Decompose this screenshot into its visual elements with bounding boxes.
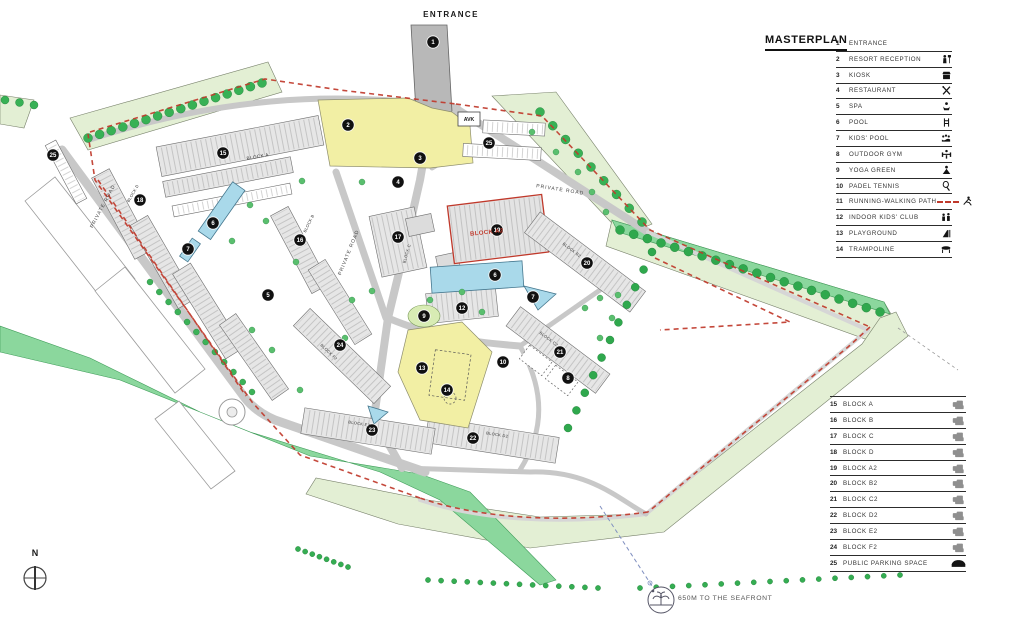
- svg-text:10: 10: [500, 360, 507, 366]
- legend-row-24: 24BLOCK F2: [830, 540, 966, 556]
- tree: [897, 572, 902, 577]
- legend-label: POOL: [849, 119, 941, 126]
- map-marker-1: 1: [427, 36, 439, 48]
- legend-number: 15: [830, 401, 843, 408]
- legend-row-17: 17BLOCK C: [830, 429, 966, 445]
- tree: [16, 99, 24, 107]
- tree: [780, 277, 789, 286]
- tree: [504, 581, 509, 586]
- tree: [816, 576, 821, 581]
- tree: [107, 126, 116, 135]
- legend-label: TRAMPOLINE: [849, 246, 940, 253]
- map-label: AVK: [464, 117, 475, 123]
- legend-row-1: 1ENTRANCE: [836, 36, 952, 52]
- tree: [725, 260, 734, 269]
- legend-label: KIOSK: [849, 72, 941, 79]
- tree: [582, 305, 588, 311]
- legend-number: 13: [836, 230, 849, 237]
- legend-number: 14: [836, 246, 849, 253]
- legend-row-15: 15BLOCK A: [830, 397, 966, 413]
- map-label: BLOCK B: [302, 213, 315, 233]
- tree: [30, 101, 38, 109]
- tree: [569, 584, 574, 589]
- legend-row-12: 12INDOOR KIDS' CLUB: [836, 210, 952, 226]
- tree: [297, 387, 303, 393]
- tree: [295, 546, 300, 551]
- tree: [881, 573, 886, 578]
- map-label: N: [32, 548, 39, 558]
- legend-row-22: 22BLOCK D2: [830, 508, 966, 524]
- legend-label: BLOCK D: [843, 449, 952, 456]
- tree: [530, 582, 535, 587]
- tree: [581, 389, 589, 397]
- legend-row-7: 7KIDS' POOL: [836, 131, 952, 147]
- tree: [246, 82, 255, 91]
- gym-icon: [941, 149, 952, 160]
- building-icon: [952, 463, 966, 474]
- svg-text:25: 25: [486, 141, 493, 147]
- legend-blocks: 15BLOCK A16BLOCK B17BLOCK C18BLOCK D19BL…: [830, 396, 966, 572]
- legend-number: 19: [830, 465, 843, 472]
- tree: [793, 282, 802, 291]
- legend-label: BLOCK B: [843, 417, 952, 424]
- legend-number: 4: [836, 87, 849, 94]
- legend-amenities: 1ENTRANCE2RESORT RECEPTION3KIOSK4RESTAUR…: [836, 36, 952, 258]
- map-marker-20: 20: [581, 257, 593, 269]
- playground-icon: [941, 228, 952, 239]
- tree: [637, 585, 642, 590]
- legend-row-14: 14TRAMPOLINE: [836, 242, 952, 258]
- map-marker-2: 2: [342, 119, 354, 131]
- map-marker-21: 21: [554, 346, 566, 358]
- tree: [767, 579, 772, 584]
- tree: [452, 579, 457, 584]
- legend-row-20: 20BLOCK B2: [830, 476, 966, 492]
- building-icon: [952, 526, 966, 537]
- legend-label: BLOCK F2: [843, 544, 952, 551]
- tree: [317, 554, 322, 559]
- tree: [735, 581, 740, 586]
- legend-row-25: 25PUBLIC PARKING SPACE: [830, 556, 966, 572]
- runner-icon: [962, 196, 973, 207]
- legend-row-5: 5SPA: [836, 99, 952, 115]
- restaurant-icon: [941, 85, 952, 96]
- tree: [615, 292, 621, 298]
- map-marker-4: 4: [392, 176, 404, 188]
- tree: [310, 552, 315, 557]
- tree: [614, 318, 622, 326]
- building: [219, 314, 288, 401]
- tree: [807, 286, 816, 295]
- legend-label: YOGA GREEN: [849, 167, 941, 174]
- seafront-icon: [648, 587, 674, 613]
- svg-text:20: 20: [584, 261, 591, 267]
- map-marker-18: 18: [134, 194, 146, 206]
- building: [463, 143, 542, 160]
- legend-row-2: 2RESORT RECEPTION: [836, 52, 952, 68]
- building-icon: [952, 494, 966, 505]
- tree: [331, 559, 336, 564]
- legend-label: KIDS' POOL: [849, 135, 940, 142]
- tree: [739, 264, 748, 273]
- svg-text:16: 16: [297, 238, 304, 244]
- map-marker-16: 16: [294, 234, 306, 246]
- tree: [193, 329, 199, 335]
- tree: [595, 585, 600, 590]
- tree: [606, 336, 614, 344]
- legend-row-4: 4RESTAURANT: [836, 84, 952, 100]
- legend-row-18: 18BLOCK D: [830, 445, 966, 461]
- tree: [589, 189, 595, 195]
- legend-number: 9: [836, 167, 849, 174]
- legend-number: 2: [836, 56, 849, 63]
- tree: [438, 578, 443, 583]
- legend-row-3: 3KIOSK: [836, 68, 952, 84]
- car-icon: [951, 559, 966, 568]
- map-label: PRIVATE ROAD: [337, 229, 361, 276]
- tree: [848, 299, 857, 308]
- legend-number: 3: [836, 72, 849, 79]
- legend-label: BLOCK E2: [843, 528, 952, 535]
- map-marker-7: 7: [182, 243, 194, 255]
- map-marker-15: 15: [217, 147, 229, 159]
- legend-number: 12: [836, 214, 849, 221]
- tree: [491, 580, 496, 585]
- legend-label: BLOCK A: [843, 401, 952, 408]
- tree: [623, 301, 631, 309]
- tree: [223, 90, 232, 99]
- tree: [543, 583, 548, 588]
- building-icon: [952, 431, 966, 442]
- tree: [478, 580, 483, 585]
- map-marker-12: 12: [456, 302, 468, 314]
- legend-label: RESTAURANT: [849, 87, 941, 94]
- tree: [597, 295, 603, 301]
- tree: [670, 584, 675, 589]
- legend-row-10: 10PADEL TENNIS: [836, 179, 952, 195]
- yoga-icon: [941, 165, 952, 176]
- svg-text:14: 14: [444, 388, 451, 394]
- map-marker-7: 7: [527, 291, 539, 303]
- svg-text:15: 15: [220, 151, 227, 157]
- tree: [598, 354, 606, 362]
- building-icon: [952, 478, 966, 489]
- tree: [561, 135, 570, 144]
- masterplan-page: 1234566778910121314151617181920212223242…: [0, 0, 1024, 627]
- svg-text:21: 21: [557, 350, 564, 356]
- legend-number: 20: [830, 480, 843, 487]
- tree: [293, 259, 299, 265]
- tree: [479, 309, 485, 315]
- tree: [865, 574, 870, 579]
- tree: [184, 319, 190, 325]
- tree: [459, 289, 465, 295]
- tree: [269, 347, 275, 353]
- tree: [147, 279, 153, 285]
- tree: [686, 583, 691, 588]
- tree: [349, 297, 355, 303]
- tree: [629, 230, 638, 239]
- building-icon: [952, 447, 966, 458]
- legend-row-23: 23BLOCK E2: [830, 524, 966, 540]
- map-marker-6: 6: [489, 269, 501, 281]
- legend-row-16: 16BLOCK B: [830, 413, 966, 429]
- map-marker-10: 10: [497, 356, 509, 368]
- pool-icon: [941, 117, 952, 128]
- tree: [258, 79, 267, 88]
- svg-text:25: 25: [50, 153, 57, 159]
- tree: [631, 283, 639, 291]
- tree: [247, 202, 253, 208]
- tree: [95, 130, 104, 139]
- svg-text:22: 22: [470, 436, 477, 442]
- legend-row-8: 8OUTDOOR GYM: [836, 147, 952, 163]
- tree: [427, 297, 433, 303]
- building-icon: [952, 542, 966, 553]
- tree: [719, 581, 724, 586]
- tree: [564, 424, 572, 432]
- padel-icon: [941, 181, 952, 192]
- tree: [784, 578, 789, 583]
- map-marker-9: 9: [418, 310, 430, 322]
- tree: [299, 178, 305, 184]
- svg-text:23: 23: [369, 428, 376, 434]
- legend-label: BLOCK C: [843, 433, 952, 440]
- legend-label: BLOCK B2: [843, 480, 952, 487]
- legend-label: RUNNING-WALKING PATH: [849, 198, 937, 205]
- kids_club-icon: [940, 212, 952, 223]
- tree: [670, 243, 679, 252]
- kids_pool-icon: [940, 133, 952, 144]
- tree: [517, 582, 522, 587]
- map-marker-25: 25: [47, 149, 59, 161]
- tree: [609, 315, 615, 321]
- tree: [751, 580, 756, 585]
- tree: [643, 234, 652, 243]
- spa-icon: [941, 101, 952, 112]
- legend-label: OUTDOOR GYM: [849, 151, 941, 158]
- tree: [165, 108, 174, 117]
- legend-label: BLOCK D2: [843, 512, 952, 519]
- tree: [832, 576, 837, 581]
- tree: [240, 379, 246, 385]
- legend-row-19: 19BLOCK A2: [830, 461, 966, 477]
- legend-label: BLOCK C2: [843, 496, 952, 503]
- legend-label: BLOCK A2: [843, 465, 952, 472]
- map-marker-14: 14: [441, 384, 453, 396]
- tree: [603, 209, 609, 215]
- map-marker-5: 5: [262, 289, 274, 301]
- legend-number: 8: [836, 151, 849, 158]
- tree: [572, 406, 580, 414]
- legend-label: ENTRANCE: [849, 40, 952, 47]
- legend-number: 10: [836, 183, 849, 190]
- tree: [130, 119, 139, 128]
- legend-label: RESORT RECEPTION: [849, 56, 941, 63]
- tree: [175, 309, 181, 315]
- legend-number: 24: [830, 544, 843, 551]
- tree: [1, 96, 9, 104]
- legend-row-21: 21BLOCK C2: [830, 492, 966, 508]
- north-compass: [24, 566, 46, 590]
- svg-text:24: 24: [337, 343, 344, 349]
- tree: [640, 266, 648, 274]
- red-dash-sample: [937, 201, 959, 203]
- legend-label: PADEL TENNIS: [849, 183, 941, 190]
- legend-number: 22: [830, 512, 843, 519]
- svg-text:17: 17: [395, 235, 402, 241]
- tree: [553, 149, 559, 155]
- tree: [263, 218, 269, 224]
- tree: [166, 299, 172, 305]
- tree: [369, 288, 375, 294]
- tree: [324, 557, 329, 562]
- legend-number: 23: [830, 528, 843, 535]
- legend-number: 1: [836, 40, 849, 47]
- tree: [345, 564, 350, 569]
- building-icon: [952, 415, 966, 426]
- tree: [657, 238, 666, 247]
- map-marker-24: 24: [334, 339, 346, 351]
- tree: [529, 129, 535, 135]
- tree: [465, 579, 470, 584]
- map-label: 650M TO THE SEAFRONT: [678, 595, 772, 602]
- tree: [849, 575, 854, 580]
- legend-label: PUBLIC PARKING SPACE: [843, 560, 951, 567]
- tree: [766, 273, 775, 282]
- legend-label: PLAYGROUND: [849, 230, 941, 237]
- building-icon: [952, 399, 966, 410]
- tree: [821, 290, 830, 299]
- building-icon: [952, 510, 966, 521]
- tree: [425, 577, 430, 582]
- legend-number: 18: [830, 449, 843, 456]
- legend-label: INDOOR KIDS' CLUB: [849, 214, 940, 221]
- legend-number: 5: [836, 103, 849, 110]
- legend-label: SPA: [849, 103, 941, 110]
- svg-text:18: 18: [137, 198, 144, 204]
- tree: [229, 238, 235, 244]
- legend-number: 25: [830, 560, 843, 567]
- tree: [359, 179, 365, 185]
- tree: [249, 327, 255, 333]
- tree: [616, 226, 625, 235]
- tree: [575, 169, 581, 175]
- kiosk-icon: [941, 70, 952, 81]
- legend-row-6: 6POOL: [836, 115, 952, 131]
- tree: [589, 371, 597, 379]
- tree: [597, 335, 603, 341]
- tree: [834, 295, 843, 304]
- svg-text:12: 12: [459, 306, 466, 312]
- map-marker-3: 3: [414, 152, 426, 164]
- legend-number: 11: [836, 198, 849, 205]
- map-marker-6: 6: [207, 217, 219, 229]
- map-label: ENTRANCE: [423, 10, 479, 19]
- legend-number: 7: [836, 135, 849, 142]
- tree: [800, 577, 805, 582]
- person-icon: [941, 54, 952, 65]
- svg-text:13: 13: [419, 366, 426, 372]
- tree: [702, 582, 707, 587]
- tree: [249, 389, 255, 395]
- tree: [338, 562, 343, 567]
- legend-number: 16: [830, 417, 843, 424]
- legend-number: 17: [830, 433, 843, 440]
- legend-row-9: 9YOGA GREEN: [836, 163, 952, 179]
- map-marker-25: 25: [483, 137, 495, 149]
- tree: [548, 121, 557, 130]
- tree: [582, 585, 587, 590]
- map-marker-8: 8: [562, 372, 574, 384]
- legend-row-11: 11RUNNING-WALKING PATH: [836, 194, 952, 210]
- legend-number: 6: [836, 119, 849, 126]
- tree: [648, 248, 656, 256]
- legend-row-13: 13PLAYGROUND: [836, 226, 952, 242]
- tree: [303, 549, 308, 554]
- tree: [556, 584, 561, 589]
- map-marker-13: 13: [416, 362, 428, 374]
- map-marker-22: 22: [467, 432, 479, 444]
- trampoline-icon: [940, 244, 952, 255]
- legend-number: 21: [830, 496, 843, 503]
- tree: [156, 289, 162, 295]
- tree: [862, 303, 871, 312]
- map-marker-17: 17: [392, 231, 404, 243]
- tree: [876, 308, 885, 317]
